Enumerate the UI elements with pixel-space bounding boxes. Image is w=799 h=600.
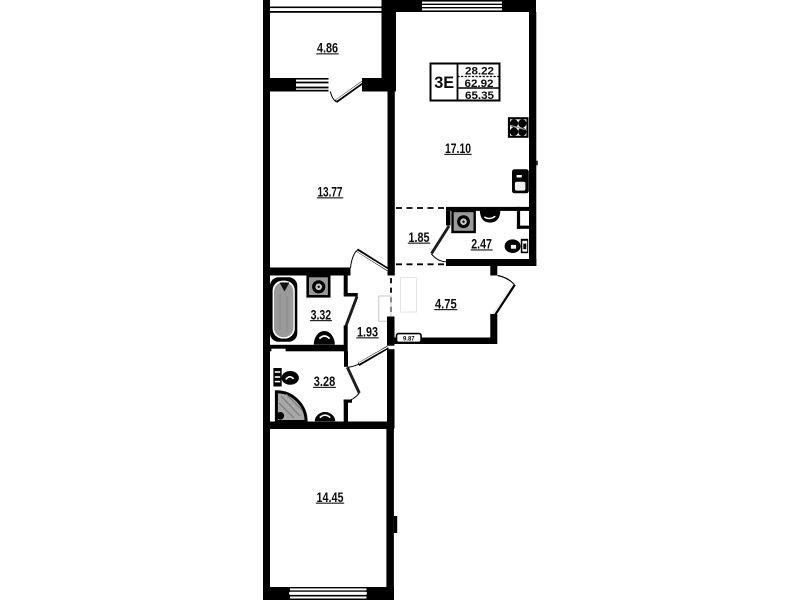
svg-text:3.28: 3.28: [314, 373, 336, 389]
svg-text:9.87: 9.87: [403, 337, 415, 343]
svg-text:65.35: 65.35: [465, 90, 494, 102]
svg-text:2.47: 2.47: [471, 236, 492, 252]
svg-text:14.45: 14.45: [317, 489, 344, 505]
svg-text:1.85: 1.85: [409, 229, 430, 245]
svg-text:17.10: 17.10: [445, 140, 471, 156]
svg-text:4.86: 4.86: [317, 40, 338, 56]
svg-text:3.32: 3.32: [311, 306, 332, 322]
svg-text:3Е: 3Е: [434, 74, 454, 92]
svg-text:13.77: 13.77: [318, 184, 343, 200]
svg-text:28.22: 28.22: [465, 66, 494, 78]
svg-text:1.93: 1.93: [357, 324, 378, 340]
svg-text:4.75: 4.75: [435, 295, 457, 311]
svg-text:62.92: 62.92: [465, 78, 494, 90]
